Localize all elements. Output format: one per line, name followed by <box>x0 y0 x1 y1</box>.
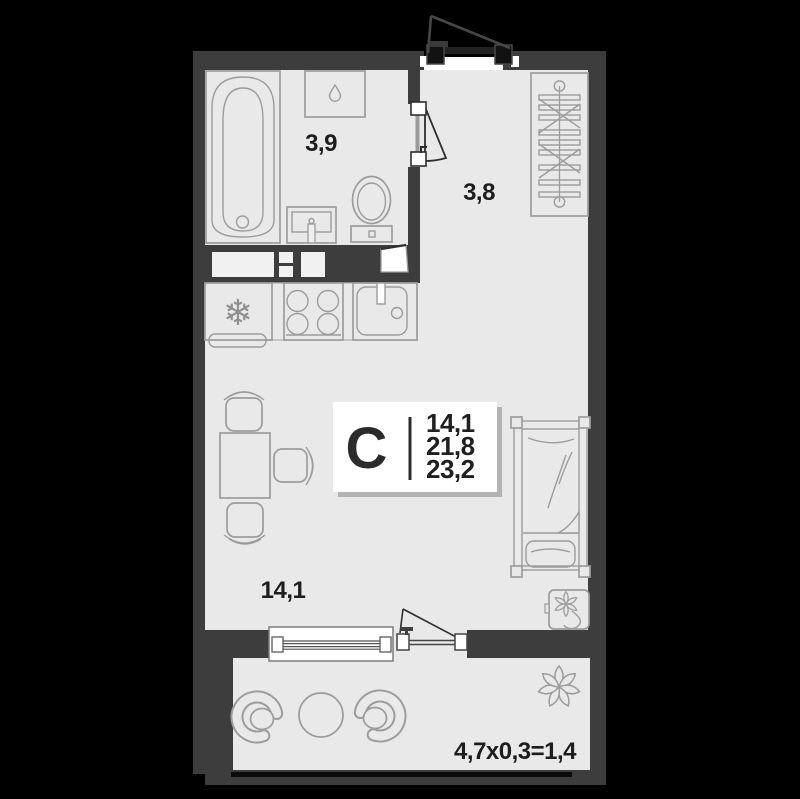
window-jamb-right <box>380 637 391 652</box>
bathroom-sink <box>287 207 336 243</box>
bed-post-tr <box>579 417 590 428</box>
balcony-left-wall <box>193 658 233 774</box>
faucet <box>377 283 385 304</box>
bed-post-br <box>579 566 590 577</box>
balcony-door-hinge-left <box>397 634 409 650</box>
snowflake-icon: ❄ <box>223 293 253 334</box>
floorplan-canvas: ❄ <box>0 0 800 799</box>
sink-pedestal <box>308 224 315 243</box>
fridge: ❄ <box>205 283 272 347</box>
unit-type-label: С <box>346 416 387 481</box>
left-wall <box>193 51 205 658</box>
bathtub <box>206 71 280 243</box>
hallway-area-label: 3,8 <box>463 179 495 206</box>
bathroom-door-hinge-bottom <box>411 152 426 166</box>
bed-post-bl <box>511 566 522 577</box>
bathroom-door-leaf <box>416 115 420 153</box>
wardrobe <box>531 73 588 216</box>
bathroom-area-label: 3,9 <box>305 130 337 157</box>
wall-niches <box>212 252 325 277</box>
toilet <box>351 177 392 243</box>
niche-small-bottom <box>279 266 293 277</box>
niche-small-top <box>279 252 293 263</box>
stat-box: С 14,1 21,8 23,2 <box>333 402 502 497</box>
top-wall-left <box>193 51 424 70</box>
stat-box-divider <box>409 417 412 480</box>
bottom-wall-left <box>193 630 270 658</box>
duct-door-leaf <box>381 245 408 272</box>
balcony-table <box>299 693 343 737</box>
balcony-formula-label: 4,7x0,3=1,4 <box>454 738 577 765</box>
toilet-tank <box>351 226 392 242</box>
plant-stand <box>545 590 589 629</box>
bathroom-wall-upper <box>408 70 420 104</box>
kitchen-counter: ❄ <box>205 283 417 347</box>
window <box>269 627 393 661</box>
niche-large <box>212 252 274 277</box>
dining-table <box>220 433 270 498</box>
window-jamb-left <box>272 637 283 652</box>
entrance-door-leaf <box>444 47 497 54</box>
balcony-door-hinge-right <box>455 634 467 650</box>
bottom-wall-right <box>467 630 606 658</box>
kitchen-sink <box>353 283 417 340</box>
niche-medium <box>301 252 325 277</box>
balcony-right-wall <box>590 658 606 785</box>
stat-total-area: 23,2 <box>426 454 475 484</box>
washing-machine <box>305 71 365 117</box>
stove <box>284 283 343 340</box>
balcony-railing <box>231 772 572 777</box>
balcony-door-handle <box>400 627 413 631</box>
bathroom-door-hinge-top <box>411 102 426 115</box>
floorplan-svg: ❄ <box>0 0 800 799</box>
bed-post-tl <box>511 417 522 428</box>
entrance-door-handle <box>430 41 448 47</box>
bathroom-wall-lower <box>408 167 420 245</box>
living-room-area-label: 14,1 <box>261 577 306 604</box>
